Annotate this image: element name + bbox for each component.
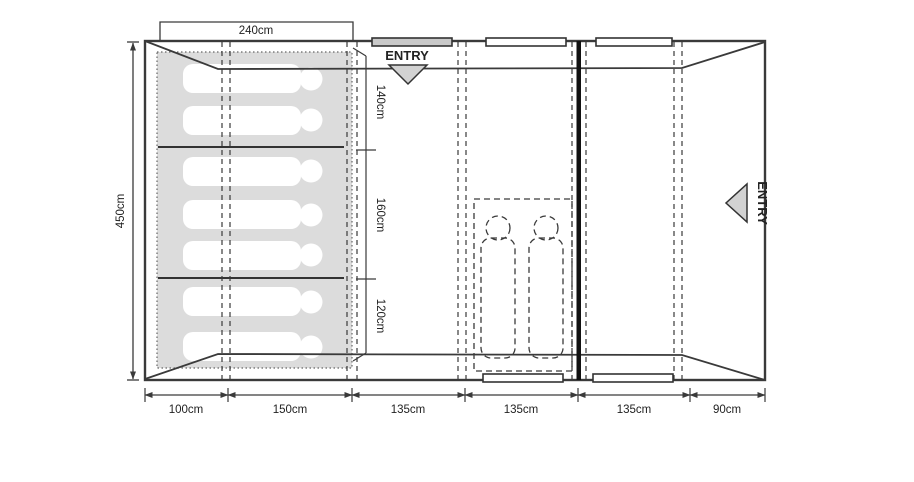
dim-bottom-section-label: 100cm	[169, 404, 204, 416]
dim-left-height-label: 450cm	[115, 194, 127, 229]
centre-divider-wall	[577, 41, 582, 380]
top-window-bar	[596, 38, 672, 46]
dim-bottom-section-label: 135cm	[504, 404, 539, 416]
sleeping-bags-outline	[474, 199, 572, 371]
dim-left: 450cm	[115, 42, 139, 380]
entry-top: ENTRY	[385, 48, 429, 84]
dim-bottom-chain	[145, 388, 765, 402]
entry-top-label: ENTRY	[385, 48, 429, 63]
dim-bottom-section-label: 90cm	[713, 404, 741, 416]
sleeping-bag-icon	[481, 216, 515, 358]
entry-top-arrow-icon	[389, 65, 427, 84]
sleeping-area	[157, 52, 352, 368]
dim-right-section-label: 120cm	[374, 299, 386, 334]
dim-bottom-section-label: 135cm	[391, 404, 426, 416]
tent-floorplan-diagram: ENTRY ENTRY 240cm 450cm 140cm 160cm 120c…	[0, 0, 914, 482]
bottom-window-bar	[593, 374, 673, 382]
dim-bottom-section-label: 150cm	[273, 404, 308, 416]
entry-right-arrow-icon	[726, 184, 747, 222]
sleeping-bag-icon	[529, 216, 563, 358]
dim-right-section-label: 140cm	[374, 85, 386, 120]
floorplan-svg: ENTRY ENTRY 240cm 450cm 140cm 160cm 120c…	[0, 0, 914, 482]
openings	[372, 38, 673, 382]
top-window-bar	[486, 38, 566, 46]
top-door-bar	[372, 38, 452, 46]
entry-right: ENTRY	[726, 181, 770, 225]
entry-right-label: ENTRY	[755, 181, 770, 225]
bottom-window-bar	[483, 374, 563, 382]
dim-bottom-labels: 100cm 150cm 135cm 135cm 135cm 90cm	[169, 404, 741, 416]
dim-right-section-label: 160cm	[374, 198, 386, 233]
dim-top-width-label: 240cm	[239, 25, 274, 37]
dim-bottom-section-label: 135cm	[617, 404, 652, 416]
